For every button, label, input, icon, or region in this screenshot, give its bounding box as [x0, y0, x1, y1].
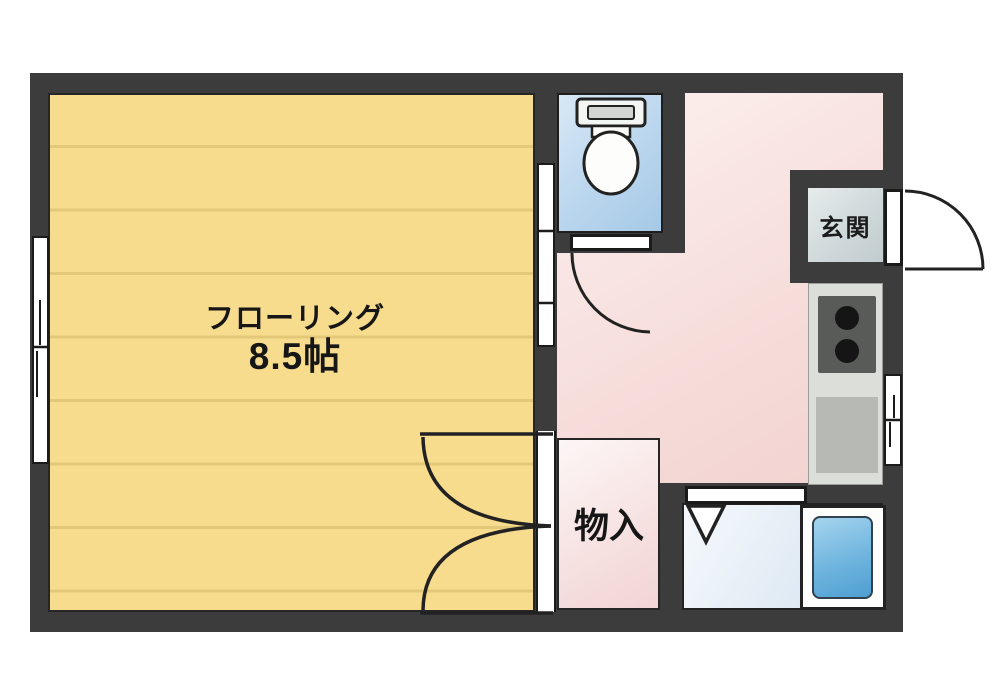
main-room-size: 8.5帖	[125, 336, 465, 379]
room-entrance: 玄関	[808, 188, 883, 262]
floor-plan-canvas: 玄関	[0, 0, 1000, 692]
entry-door-leaf	[884, 189, 903, 266]
window-left-icon	[32, 236, 49, 464]
bathtub-water	[812, 516, 873, 599]
window-right-icon	[884, 374, 902, 466]
main-room-label: フローリング 8.5帖	[125, 303, 465, 379]
toilet-door-leaf	[570, 234, 652, 251]
sink-basin	[816, 397, 878, 473]
main-room-name: フローリング	[125, 303, 465, 336]
room-toilet	[557, 93, 663, 233]
entrance-label: 玄関	[820, 208, 872, 243]
bath-folding-door-leaf	[685, 486, 807, 504]
closet-double-door-opening	[536, 431, 556, 612]
entry-door-arc	[905, 191, 983, 269]
stove-icon	[818, 296, 876, 373]
closet-label: 物入	[557, 507, 661, 547]
sliding-door-main-room	[537, 163, 555, 347]
